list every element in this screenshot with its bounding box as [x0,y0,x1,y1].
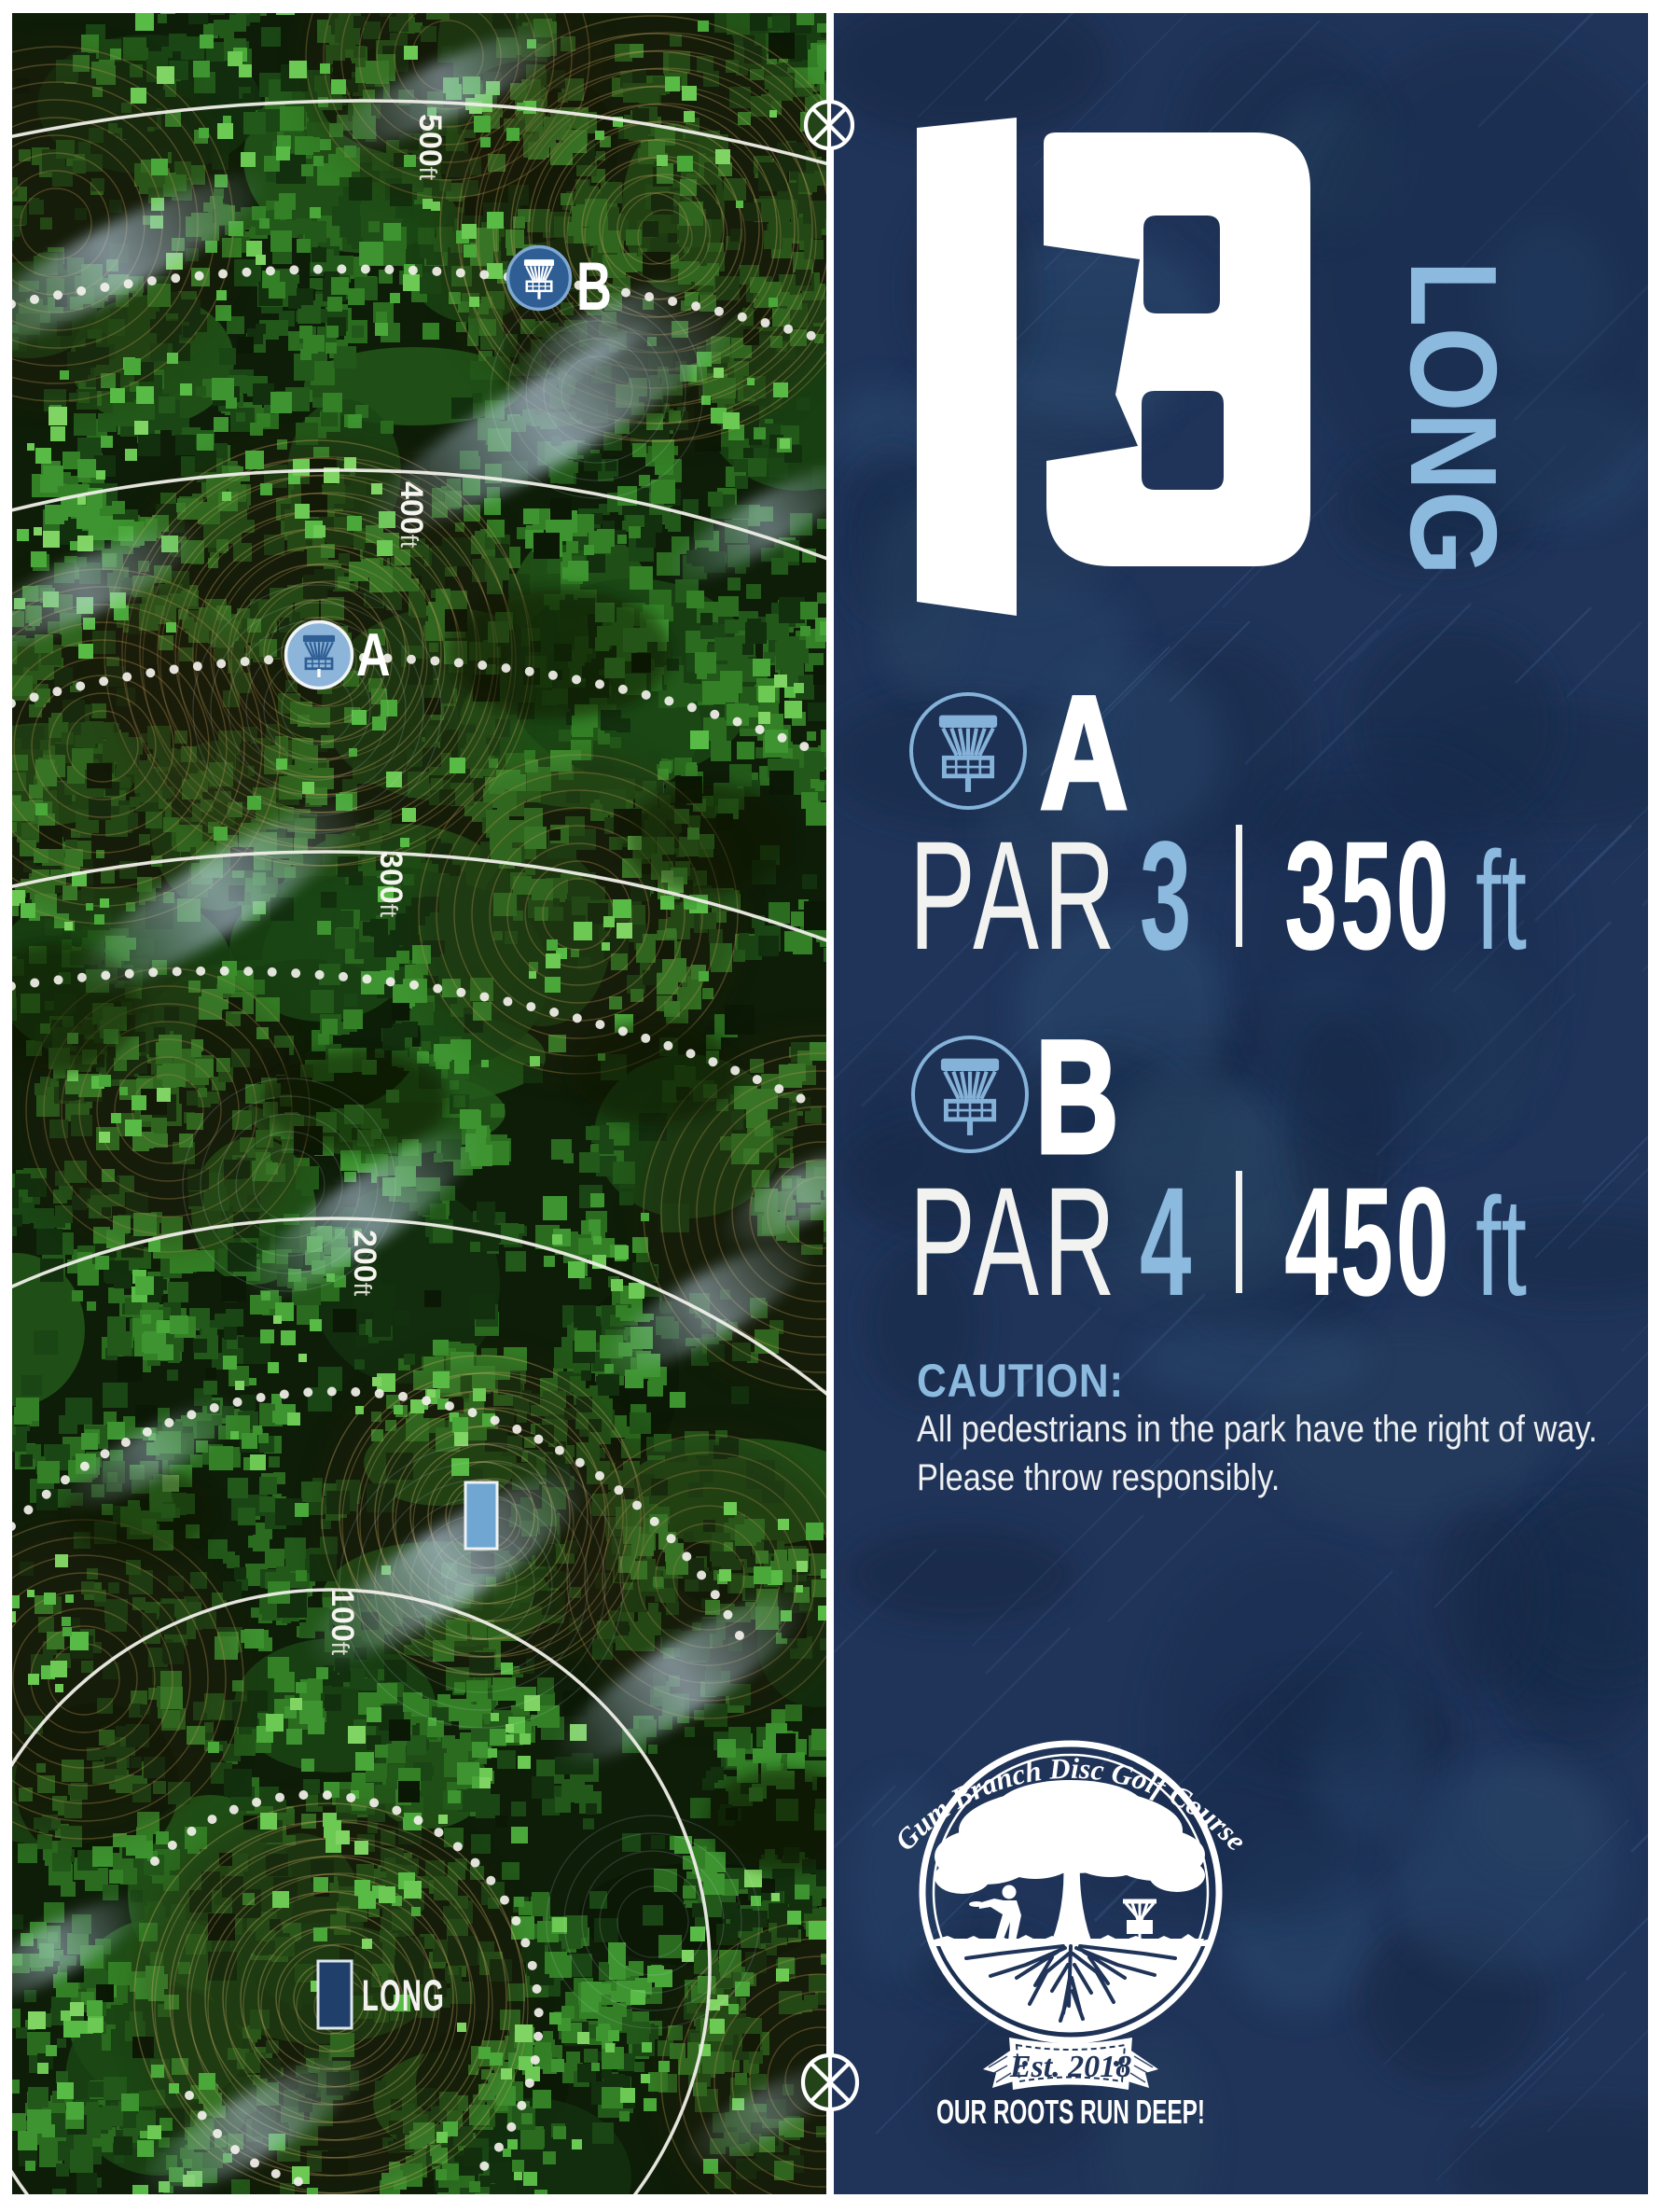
svg-text:LONG: LONG [362,1972,445,2021]
svg-text:OUR ROOTS RUN DEEP!: OUR ROOTS RUN DEEP! [936,2093,1205,2131]
svg-text:PAR: PAR [909,809,1120,982]
svg-text:400ft: 400ft [394,481,429,549]
svg-text:350: 350 [1284,810,1451,982]
svg-text:100ft: 100ft [325,1589,360,1656]
svg-text:LONG: LONG [1385,260,1522,576]
svg-text:B: B [576,249,612,325]
svg-text:3: 3 [1140,810,1191,983]
svg-text:CAUTION:: CAUTION: [917,1354,1124,1406]
svg-text:200ft: 200ft [347,1230,382,1297]
svg-text:PAR: PAR [909,1155,1120,1329]
svg-text:ft: ft [1475,1168,1527,1325]
svg-text:ft: ft [1475,822,1527,979]
svg-text:Est. 2018: Est. 2018 [1009,2050,1131,2084]
svg-text:4: 4 [1140,1156,1191,1329]
svg-text:450: 450 [1284,1156,1451,1329]
svg-text:500ft: 500ft [412,114,448,181]
svg-text:All pedestrians in the park ha: All pedestrians in the park have the rig… [917,1408,1598,1450]
svg-text:300ft: 300ft [373,851,409,918]
svg-text:Please throw responsibly.: Please throw responsibly. [917,1456,1280,1498]
svg-text:A: A [356,621,391,689]
